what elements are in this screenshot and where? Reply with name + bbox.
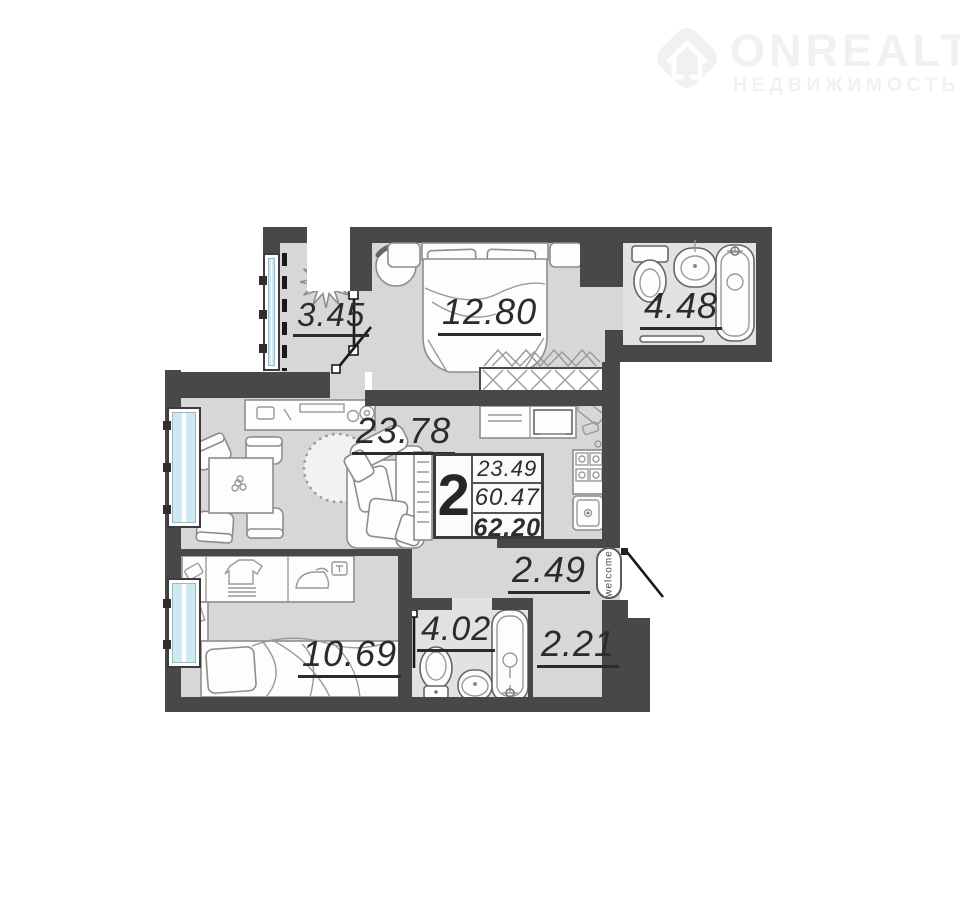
wall xyxy=(602,362,620,548)
wall xyxy=(492,598,533,610)
toilet-icon xyxy=(420,647,452,699)
welcome-mat: welcome xyxy=(596,547,622,599)
room-area-label-bedroom: 12.80 xyxy=(438,294,541,336)
wall xyxy=(165,697,650,712)
wall xyxy=(528,610,533,697)
wall xyxy=(756,227,772,362)
wall xyxy=(181,549,400,556)
window xyxy=(263,253,280,371)
wall xyxy=(398,598,452,610)
floor-plan-page: ONREALT НЕДВИЖИМОСТЬ xyxy=(0,0,960,910)
dining-table xyxy=(209,458,273,513)
bath-mat xyxy=(640,336,704,342)
sink-icon xyxy=(674,240,716,287)
wardrobe-hatched xyxy=(480,368,603,392)
window xyxy=(167,578,201,668)
room-area-label-balcony: 3.45 xyxy=(293,298,369,337)
window xyxy=(167,407,201,528)
room-area-label-hall-2: 2.21 xyxy=(537,626,619,668)
kitchen-counter xyxy=(480,406,576,438)
room-area-label-bedroom-2: 10.69 xyxy=(298,636,401,678)
room-area-label-hallway: 2.49 xyxy=(508,552,590,594)
entry-door-swing xyxy=(621,548,663,597)
room-area-label-bathroom-2: 4.02 xyxy=(417,612,495,652)
window-glass xyxy=(172,583,196,663)
wall xyxy=(365,390,603,406)
dining-chair xyxy=(196,511,234,543)
stove-icon xyxy=(573,450,603,494)
wardrobe-row xyxy=(182,556,354,602)
wall xyxy=(165,372,330,398)
rooms-count: 2 xyxy=(436,456,473,536)
window-glass xyxy=(268,258,275,366)
wall xyxy=(350,227,372,291)
total-area-value: 62.20 xyxy=(473,514,541,543)
wall xyxy=(580,227,623,287)
window-glass xyxy=(172,412,196,523)
welcome-mat-label: welcome xyxy=(604,550,615,596)
cutting-board-icon xyxy=(576,399,604,447)
wall xyxy=(605,345,772,362)
living-area-value: 23.49 xyxy=(473,456,541,484)
apartment-stats-box: 2 23.49 60.47 62.20 xyxy=(433,453,544,539)
shelf-unit xyxy=(414,452,432,540)
bathtub-icon xyxy=(492,610,528,702)
facade-niche xyxy=(307,225,350,291)
kitchen-sink-icon xyxy=(573,496,603,530)
balcony-boundary-dashed-line xyxy=(282,253,287,371)
room-area-label-living: 23.78 xyxy=(352,413,455,455)
floor-area-value: 60.47 xyxy=(473,484,541,514)
room-area-label-bathroom: 4.48 xyxy=(640,288,722,330)
